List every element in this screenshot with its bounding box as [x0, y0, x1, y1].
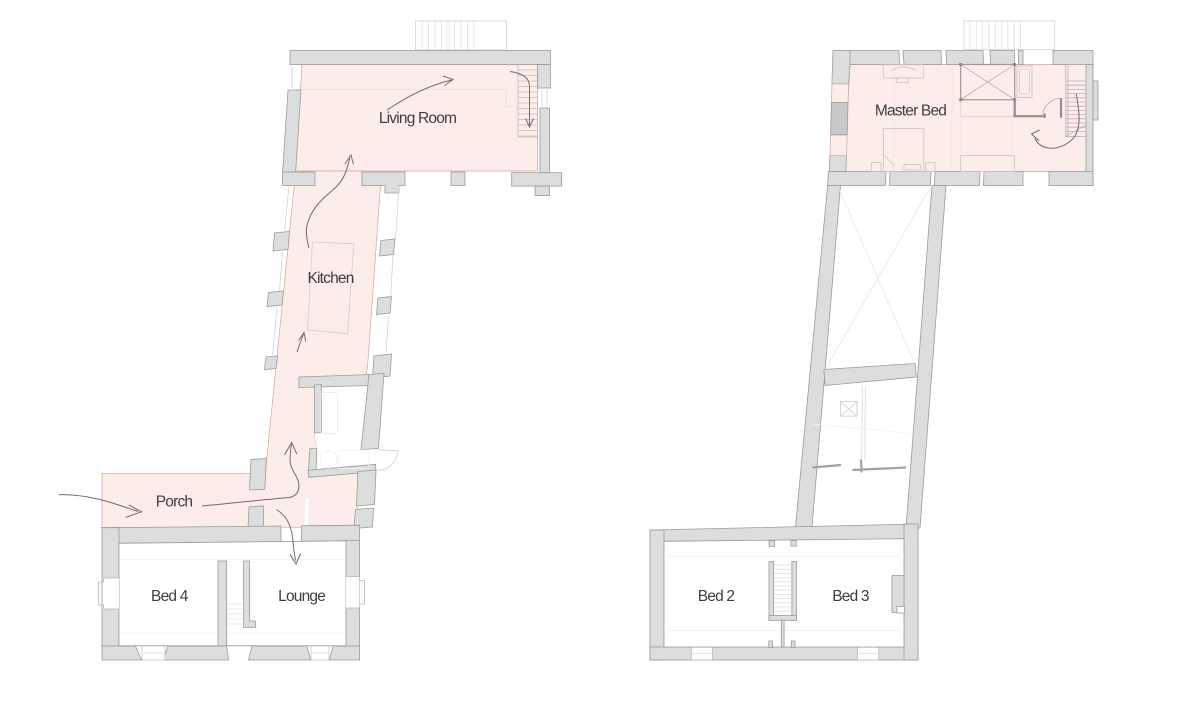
svg-text:Bed 3: Bed 3	[832, 588, 869, 605]
svg-text:Porch: Porch	[156, 494, 193, 511]
svg-text:Master Bed: Master Bed	[875, 103, 946, 120]
svg-text:Bed 2: Bed 2	[698, 588, 735, 605]
svg-text:Kitchen: Kitchen	[307, 270, 353, 287]
svg-text:Bed 4: Bed 4	[151, 588, 189, 605]
svg-text:Living Room: Living Room	[379, 110, 456, 127]
svg-text:Lounge: Lounge	[278, 588, 325, 605]
